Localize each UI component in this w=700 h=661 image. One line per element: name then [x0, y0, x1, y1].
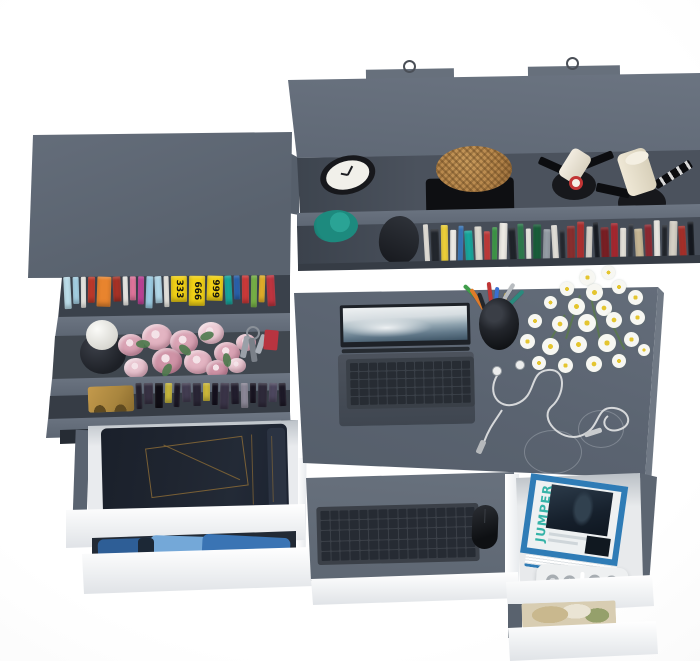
key	[418, 529, 427, 538]
key	[350, 380, 358, 388]
book-spine	[138, 276, 144, 304]
bookcase-top-panel	[28, 132, 292, 279]
key	[378, 371, 386, 379]
key	[437, 518, 446, 527]
key	[425, 387, 433, 395]
key	[360, 389, 368, 397]
key	[380, 550, 389, 559]
lamp-accent-ring	[569, 176, 583, 190]
key	[350, 530, 359, 539]
bracket-hook-icon	[403, 60, 416, 73]
bookcase-dark-book-row	[136, 383, 292, 413]
key	[369, 363, 377, 371]
earbud	[516, 361, 525, 370]
key	[409, 549, 418, 558]
key	[397, 396, 405, 404]
key	[369, 371, 377, 379]
key	[417, 508, 426, 517]
key	[388, 379, 396, 387]
key	[369, 380, 377, 388]
key	[398, 509, 407, 518]
key	[359, 520, 368, 529]
key	[389, 550, 398, 559]
key	[388, 397, 396, 405]
book-spine	[474, 226, 482, 265]
key	[369, 388, 377, 396]
key	[456, 517, 465, 526]
key	[350, 551, 359, 560]
furniture-render: 333666999	[0, 0, 700, 661]
book-spine	[241, 383, 249, 408]
key	[387, 371, 395, 379]
key	[456, 528, 465, 537]
magazine-inset-photo	[585, 536, 611, 557]
key	[350, 389, 358, 397]
book-spine	[123, 276, 129, 305]
earbud	[493, 367, 502, 376]
key	[369, 510, 378, 519]
book-spine	[144, 383, 153, 404]
key	[398, 519, 407, 528]
book-spine	[266, 275, 276, 306]
daisy-flower	[528, 314, 542, 328]
key	[331, 551, 340, 560]
key	[389, 540, 398, 549]
key	[424, 361, 432, 369]
key	[434, 370, 442, 378]
key	[428, 539, 437, 548]
book-spine	[224, 275, 232, 304]
rose-leaf	[136, 340, 150, 348]
key	[438, 549, 447, 558]
daisy-flower	[624, 332, 639, 347]
key	[425, 379, 433, 387]
key	[341, 551, 350, 560]
key	[360, 551, 369, 560]
laptop-keyboard	[346, 357, 475, 410]
book-spine	[96, 276, 111, 306]
earphone-cable-end	[484, 410, 502, 442]
book-spine	[155, 383, 163, 408]
daisy-flower	[568, 298, 585, 315]
key	[408, 509, 417, 518]
key	[437, 508, 446, 517]
book-spine	[492, 227, 497, 265]
daisy-flower	[630, 310, 645, 325]
key	[360, 380, 368, 388]
key	[443, 370, 451, 378]
key	[416, 396, 424, 404]
book-spine	[577, 222, 584, 264]
key	[453, 378, 461, 386]
book-spine-label: 333	[174, 280, 184, 299]
key	[428, 549, 437, 558]
key	[425, 370, 433, 378]
key	[399, 550, 408, 559]
bracket-hook-icon	[566, 57, 579, 70]
right-drawer2-front	[508, 621, 658, 661]
key	[351, 397, 359, 405]
key	[397, 388, 405, 396]
laptop-wallpaper	[343, 306, 468, 343]
book-spine	[145, 276, 153, 308]
pen-cup	[479, 298, 519, 350]
earphone-cable	[493, 370, 628, 437]
key	[341, 541, 350, 550]
woven-basket	[436, 146, 512, 192]
daisy-flower	[602, 266, 615, 279]
key	[406, 388, 414, 396]
key	[447, 548, 456, 557]
book-spine	[423, 224, 430, 266]
key	[321, 541, 330, 550]
key	[388, 519, 397, 528]
key	[434, 361, 442, 369]
key	[379, 519, 388, 528]
magazine-cover: JUMPER	[520, 473, 628, 566]
book-spine	[441, 225, 449, 266]
key	[359, 371, 367, 379]
book-spine	[63, 277, 72, 309]
book-spine	[242, 275, 249, 303]
daisy-flower	[606, 312, 622, 328]
key	[452, 369, 460, 377]
book-spine-label: 999	[210, 279, 221, 298]
key	[388, 509, 397, 518]
key	[398, 529, 407, 538]
key	[406, 379, 414, 387]
earphone-jack	[475, 439, 486, 454]
key	[370, 550, 379, 559]
key	[406, 370, 414, 378]
key	[331, 531, 340, 540]
key	[399, 539, 408, 548]
key	[321, 521, 330, 530]
mouse-seam	[484, 509, 485, 523]
book-spine	[164, 276, 170, 307]
key	[359, 510, 368, 519]
key	[457, 548, 466, 557]
key	[350, 363, 358, 371]
key	[444, 395, 452, 403]
key	[434, 396, 442, 404]
book-spine	[250, 383, 256, 403]
key	[415, 370, 423, 378]
book-spine	[234, 275, 241, 299]
tray-keyboard	[316, 503, 479, 565]
daisy-flower	[578, 314, 596, 332]
key	[369, 397, 377, 405]
book-spine	[154, 276, 162, 303]
key	[330, 521, 339, 530]
key	[360, 397, 368, 405]
key	[378, 388, 386, 396]
book-spine	[499, 223, 508, 265]
key	[379, 530, 388, 539]
key	[378, 380, 386, 388]
book-spine	[135, 383, 142, 409]
key	[447, 518, 456, 527]
book-spine	[269, 383, 278, 402]
laptop-screen	[340, 303, 471, 348]
key	[443, 378, 451, 386]
key	[370, 540, 379, 549]
laptop	[337, 303, 476, 428]
key	[444, 387, 452, 395]
key	[378, 509, 387, 518]
book-spine	[258, 275, 265, 302]
book-spine	[258, 383, 268, 407]
drawer2-front	[82, 547, 314, 594]
earphones	[466, 350, 650, 462]
key	[453, 387, 461, 395]
key	[408, 539, 417, 548]
key	[408, 519, 417, 528]
key	[408, 529, 417, 538]
key	[379, 397, 387, 405]
book-spine	[130, 276, 136, 300]
key	[331, 541, 340, 550]
bookcase-top-book-row: 333666999	[64, 275, 292, 317]
key	[434, 387, 442, 395]
book-spine-label: 666	[192, 281, 202, 300]
key	[418, 549, 427, 558]
key	[437, 538, 446, 547]
book-spine	[73, 277, 80, 304]
key	[427, 518, 436, 527]
key	[407, 396, 415, 404]
key	[447, 528, 456, 537]
key	[452, 361, 460, 369]
key	[397, 371, 405, 379]
book-spine	[219, 383, 229, 409]
book-spine	[174, 383, 181, 407]
key	[388, 388, 396, 396]
hutch-top-panel	[288, 73, 700, 159]
book-spine	[193, 383, 201, 406]
rose-flower	[124, 358, 148, 378]
key	[446, 508, 455, 517]
key	[427, 528, 436, 537]
key	[425, 396, 433, 404]
key	[434, 378, 442, 386]
key	[417, 518, 426, 527]
book-spine	[212, 383, 218, 405]
book-spine	[203, 383, 210, 401]
book-spine: 999	[207, 275, 224, 301]
book-spine	[517, 224, 525, 265]
key	[415, 362, 423, 370]
key	[387, 362, 395, 370]
book-spine	[251, 275, 257, 307]
key	[418, 539, 427, 548]
key	[396, 362, 404, 370]
book-spine	[88, 277, 95, 303]
book-spine	[81, 277, 86, 308]
book-spine	[533, 224, 541, 264]
book-spine	[450, 230, 456, 266]
magazine-photo	[546, 484, 614, 536]
key	[350, 541, 359, 550]
computer-mouse	[471, 505, 499, 550]
key	[321, 531, 330, 540]
key	[406, 362, 414, 370]
key	[359, 363, 367, 371]
key	[360, 540, 369, 549]
key	[447, 538, 456, 547]
key	[379, 540, 388, 549]
book-spine	[231, 383, 240, 404]
book-spine	[165, 383, 172, 403]
book-spine: 666	[189, 276, 205, 306]
lamp-arm	[653, 160, 693, 190]
key	[378, 362, 386, 370]
key	[456, 507, 465, 516]
daisy-flower	[612, 280, 626, 294]
key	[389, 529, 398, 538]
book-spine	[430, 229, 439, 266]
key	[321, 552, 330, 561]
daisy-flower	[552, 316, 568, 332]
book-spine: 333	[171, 276, 187, 302]
daisy-flower	[520, 334, 535, 349]
key	[437, 528, 446, 537]
daisy-flower	[586, 284, 603, 301]
key	[349, 510, 358, 519]
earphone-remote	[584, 427, 603, 437]
key	[415, 379, 423, 387]
key	[350, 520, 359, 529]
key	[397, 379, 405, 387]
daisy-flower	[628, 290, 643, 305]
red-box-decor	[263, 329, 279, 350]
gold-bookend	[88, 385, 135, 413]
key	[340, 531, 349, 540]
key	[320, 511, 329, 520]
daisy-flower	[580, 270, 595, 285]
book-spine	[112, 276, 121, 301]
key	[360, 530, 369, 539]
magazine-caption-line	[548, 538, 578, 545]
jeans-waistband	[267, 428, 287, 512]
key	[369, 520, 378, 529]
daisy-flower	[560, 282, 574, 296]
key	[443, 361, 451, 369]
book-spine	[182, 383, 192, 402]
key	[416, 387, 424, 395]
key	[467, 548, 476, 557]
key	[330, 511, 339, 520]
key	[369, 530, 378, 539]
key	[427, 508, 436, 517]
key	[453, 395, 461, 403]
daisy-flower	[544, 296, 557, 309]
key	[340, 510, 349, 519]
book-spine	[458, 226, 464, 266]
key	[350, 372, 358, 380]
key	[340, 520, 349, 529]
book-spine	[279, 383, 287, 406]
key	[457, 538, 466, 547]
